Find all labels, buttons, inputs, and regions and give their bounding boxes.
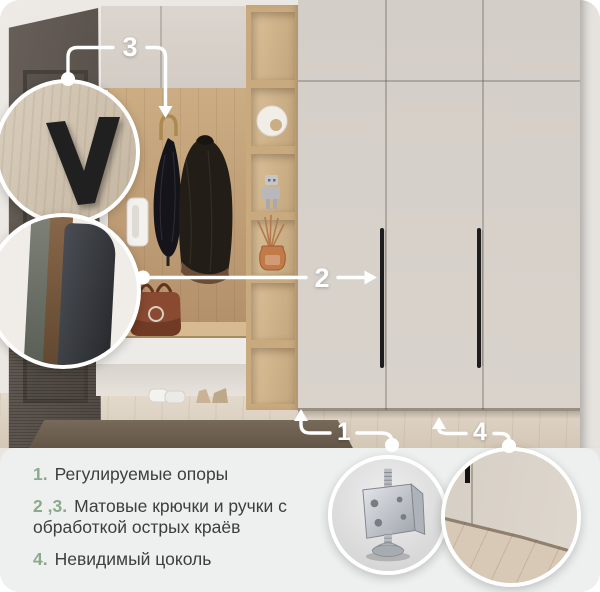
feature-text: Матовые крючки и ручки с обработкой остр… bbox=[33, 496, 287, 537]
handle-tip bbox=[465, 463, 470, 483]
feature-text: Невидимый цоколь bbox=[55, 549, 212, 569]
heels bbox=[196, 388, 228, 403]
feature-item-4: 4.Невидимый цоколь bbox=[33, 549, 348, 570]
intercom bbox=[127, 198, 148, 246]
matte-handle-profile bbox=[55, 223, 116, 369]
callout-number-4: 4 bbox=[465, 417, 495, 447]
callout-number-1: 1 bbox=[329, 417, 359, 447]
feature-number: 4. bbox=[33, 549, 48, 569]
feature-number: 1. bbox=[33, 464, 48, 484]
feature-item-2-3: 2 ,3.Матовые крючки и ручки с обработкой… bbox=[33, 496, 348, 538]
adjustable-foot-icon bbox=[332, 459, 444, 571]
callout-number-3: 3 bbox=[115, 32, 145, 62]
inset-plinth-closeup bbox=[441, 447, 581, 587]
feature-text: Регулируемые опоры bbox=[55, 464, 229, 484]
product-card: 1.Регулируемые опоры 2 ,3.Матовые крючки… bbox=[0, 0, 600, 592]
wardrobe-handle-left bbox=[380, 228, 384, 368]
coat bbox=[179, 135, 232, 284]
inset-support-closeup bbox=[328, 455, 448, 575]
reed-diffuser bbox=[258, 215, 285, 270]
cabinet-bottom-door bbox=[445, 451, 577, 583]
robot-figurine bbox=[262, 175, 280, 209]
brass-hook bbox=[161, 116, 176, 140]
wardrobe-handle-right bbox=[477, 228, 481, 368]
vase bbox=[257, 106, 287, 136]
sneakers bbox=[149, 389, 185, 403]
callout-number-2: 2 bbox=[307, 263, 337, 293]
door-seam bbox=[471, 451, 473, 530]
inset-hook-closeup bbox=[0, 79, 140, 225]
feature-item-1: 1.Регулируемые опоры bbox=[33, 464, 348, 485]
feature-number: 2 ,3. bbox=[33, 496, 67, 516]
umbrella bbox=[154, 138, 181, 266]
